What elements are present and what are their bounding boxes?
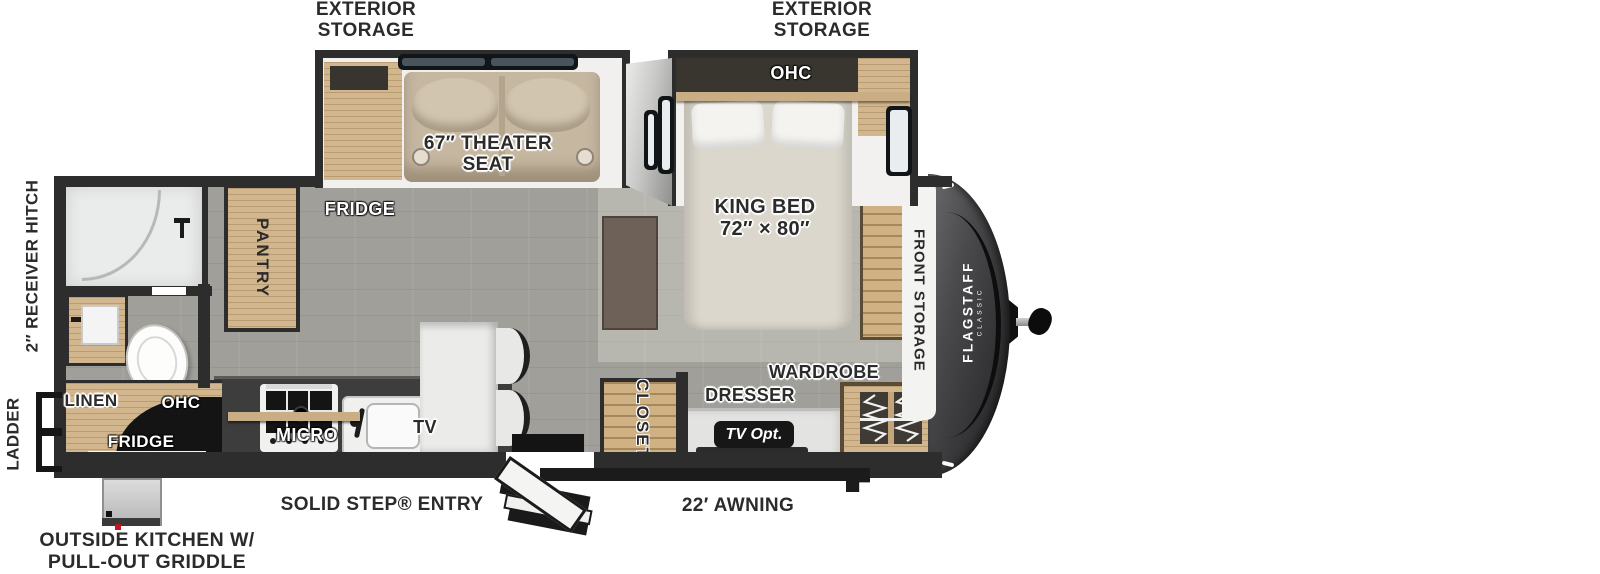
bath-sink-icon [81, 305, 119, 345]
window-pane [491, 58, 574, 66]
theater-seat-label-line1: 67″ THEATER [388, 134, 588, 155]
shower-door-arc-icon [82, 190, 161, 281]
pull-out-griddle-icon [102, 478, 162, 526]
ladder-label: LADDER [5, 397, 24, 470]
closet-wall-stub [676, 372, 688, 452]
top-wall-left [54, 176, 323, 187]
dresser-label: DRESSER [680, 386, 820, 406]
ladder-icon [36, 430, 62, 472]
linen-label: LINEN [58, 392, 124, 411]
fridge-label: FRIDGE [310, 200, 410, 220]
king-bed-label-line2: 72″ × 80″ [690, 218, 840, 240]
exterior-storage-right-line1: EXTERIOR [737, 0, 907, 21]
theater-seat-label: 67″ THEATER SEAT [388, 134, 588, 176]
ohc-shelf [676, 92, 910, 101]
closet-label: CLOSET [632, 379, 652, 460]
pillow-icon [691, 100, 765, 150]
receiver-hitch-label: 2″ RECEIVER HITCH [24, 180, 43, 353]
front-storage-label: FRONT STORAGE [911, 229, 928, 372]
brand-name: FLAGSTAFF [961, 261, 976, 363]
tv-label: TV [400, 418, 450, 438]
outside-kitchen-caption-line1: OUTSIDE KITCHEN W/ [37, 529, 257, 551]
hitch-handle-icon [1024, 305, 1055, 339]
awning-label: 22′ AWNING [648, 496, 828, 517]
bedroom-window-left-icon [658, 96, 674, 174]
microwave-shelf [228, 412, 360, 421]
micro-label: MICRO [262, 426, 352, 446]
brand-series: CLASSIC [977, 261, 984, 363]
exterior-storage-label-right: EXTERIOR STORAGE [737, 0, 907, 42]
bedroom-ohc-label: OHC [756, 64, 826, 84]
griddle-front [102, 518, 160, 526]
cabinet-counter [330, 66, 388, 90]
window-pane [402, 58, 485, 66]
tv-opt-label: TV Opt. [726, 426, 783, 444]
awning-bracket-icon [846, 468, 870, 492]
bedroom-window-right-icon [886, 106, 912, 176]
king-bed-label-line1: KING BED [690, 196, 840, 218]
bedroom-tv-cabinet [602, 216, 658, 330]
entry-mat [512, 434, 584, 452]
bath-vanity [66, 294, 128, 366]
pillow-icon [771, 100, 845, 150]
wardrobe-label: WARDROBE [744, 363, 904, 383]
king-bed-label: KING BED 72″ × 80″ [690, 196, 840, 240]
awning-rail [540, 468, 858, 481]
outside-kitchen-caption-line2: PULL-OUT GRIDDLE [37, 551, 257, 573]
marker-light-icon [942, 461, 955, 468]
floorplan-diagram: EXTERIOR STORAGE EXTERIOR STORAGE 67″ TH… [0, 0, 1600, 574]
exterior-storage-right-line2: STORAGE [737, 21, 907, 42]
front-storage-wall: FRONT STORAGE [902, 180, 936, 420]
theater-seat-label-line2: SEAT [388, 155, 588, 176]
seat-back-cushion [412, 78, 498, 132]
stove-vent [266, 384, 332, 389]
exterior-storage-left-line1: EXTERIOR [281, 0, 451, 21]
brand-mark: FLAGSTAFF CLASSIC [961, 261, 984, 363]
outside-kitchen-caption: OUTSIDE KITCHEN W/ PULL-OUT GRIDDLE [37, 529, 257, 574]
bath-wall [64, 286, 212, 296]
tv-opt-badge: TV Opt. [714, 421, 794, 448]
shower-head-icon [180, 222, 184, 238]
bath-wall-divider [198, 284, 210, 388]
pantry: PANTRY [224, 184, 300, 332]
exterior-storage-left-line2: STORAGE [281, 21, 451, 42]
top-wall-right [910, 176, 952, 187]
seat-back-cushion [504, 78, 590, 132]
griddle-knob-icon [106, 511, 112, 517]
outside-ohc-label: OHC [148, 394, 214, 413]
window-pane [662, 100, 670, 170]
angled-wall-window-icon [644, 110, 658, 170]
window-pane [890, 110, 908, 172]
pantry-label: PANTRY [252, 218, 272, 298]
exterior-storage-label-left: EXTERIOR STORAGE [281, 0, 451, 42]
shower-head-icon [174, 218, 190, 223]
window-pane [648, 114, 654, 166]
bath-faucet-icon [71, 317, 81, 322]
closet: CLOSET [600, 378, 684, 460]
shower [64, 184, 208, 288]
bath-door-opening [152, 287, 186, 295]
outside-fridge-label: FRIDGE [98, 433, 184, 452]
solid-step-entry-label: SOLID STEP® ENTRY [258, 495, 506, 516]
slide-window-icon [398, 54, 578, 70]
